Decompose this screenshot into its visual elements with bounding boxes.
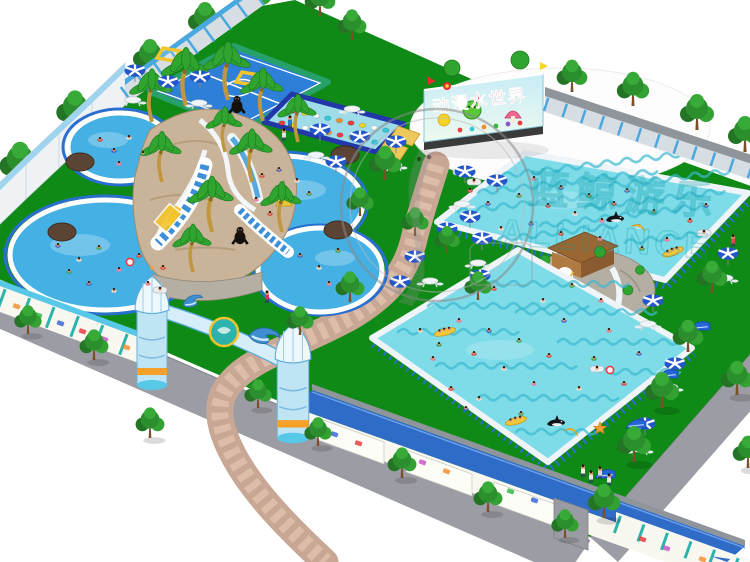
stepping-stone: [279, 121, 285, 126]
shrub: [444, 60, 460, 76]
tree-shadow: [395, 477, 417, 484]
stepping-stone: [302, 126, 308, 131]
stepping-stone: [383, 128, 389, 133]
tree-shadow: [252, 407, 273, 413]
raft-float: [467, 179, 481, 185]
tree-shadow: [22, 333, 43, 339]
stepping-stone: [359, 123, 365, 128]
tree-shadow: [143, 437, 165, 444]
raft-float: [153, 287, 167, 293]
rock: [48, 223, 76, 241]
ring-float: [606, 366, 613, 373]
tree-shadow: [481, 511, 503, 518]
tree-shadow: [626, 461, 652, 469]
rock: [66, 153, 94, 171]
water-park-render: 动漫水世界 蓝鲸游乐 ALLIANCE: [0, 0, 750, 562]
ring-float: [126, 258, 133, 265]
water-park-scene: 动漫水世界 蓝鲸游乐 ALLIANCE: [0, 0, 750, 562]
stepping-stone: [325, 116, 331, 121]
tree-shadow: [312, 445, 333, 451]
tree-shadow: [559, 537, 580, 543]
stepping-stone: [337, 133, 343, 138]
shrub: [511, 51, 529, 69]
stepping-stone: [336, 118, 342, 123]
tree-shadow: [596, 517, 621, 525]
raft-float: [590, 366, 604, 372]
tree-shadow: [87, 359, 109, 366]
stepping-stone: [348, 121, 354, 126]
tree-shadow: [654, 407, 680, 415]
rock: [324, 221, 352, 239]
